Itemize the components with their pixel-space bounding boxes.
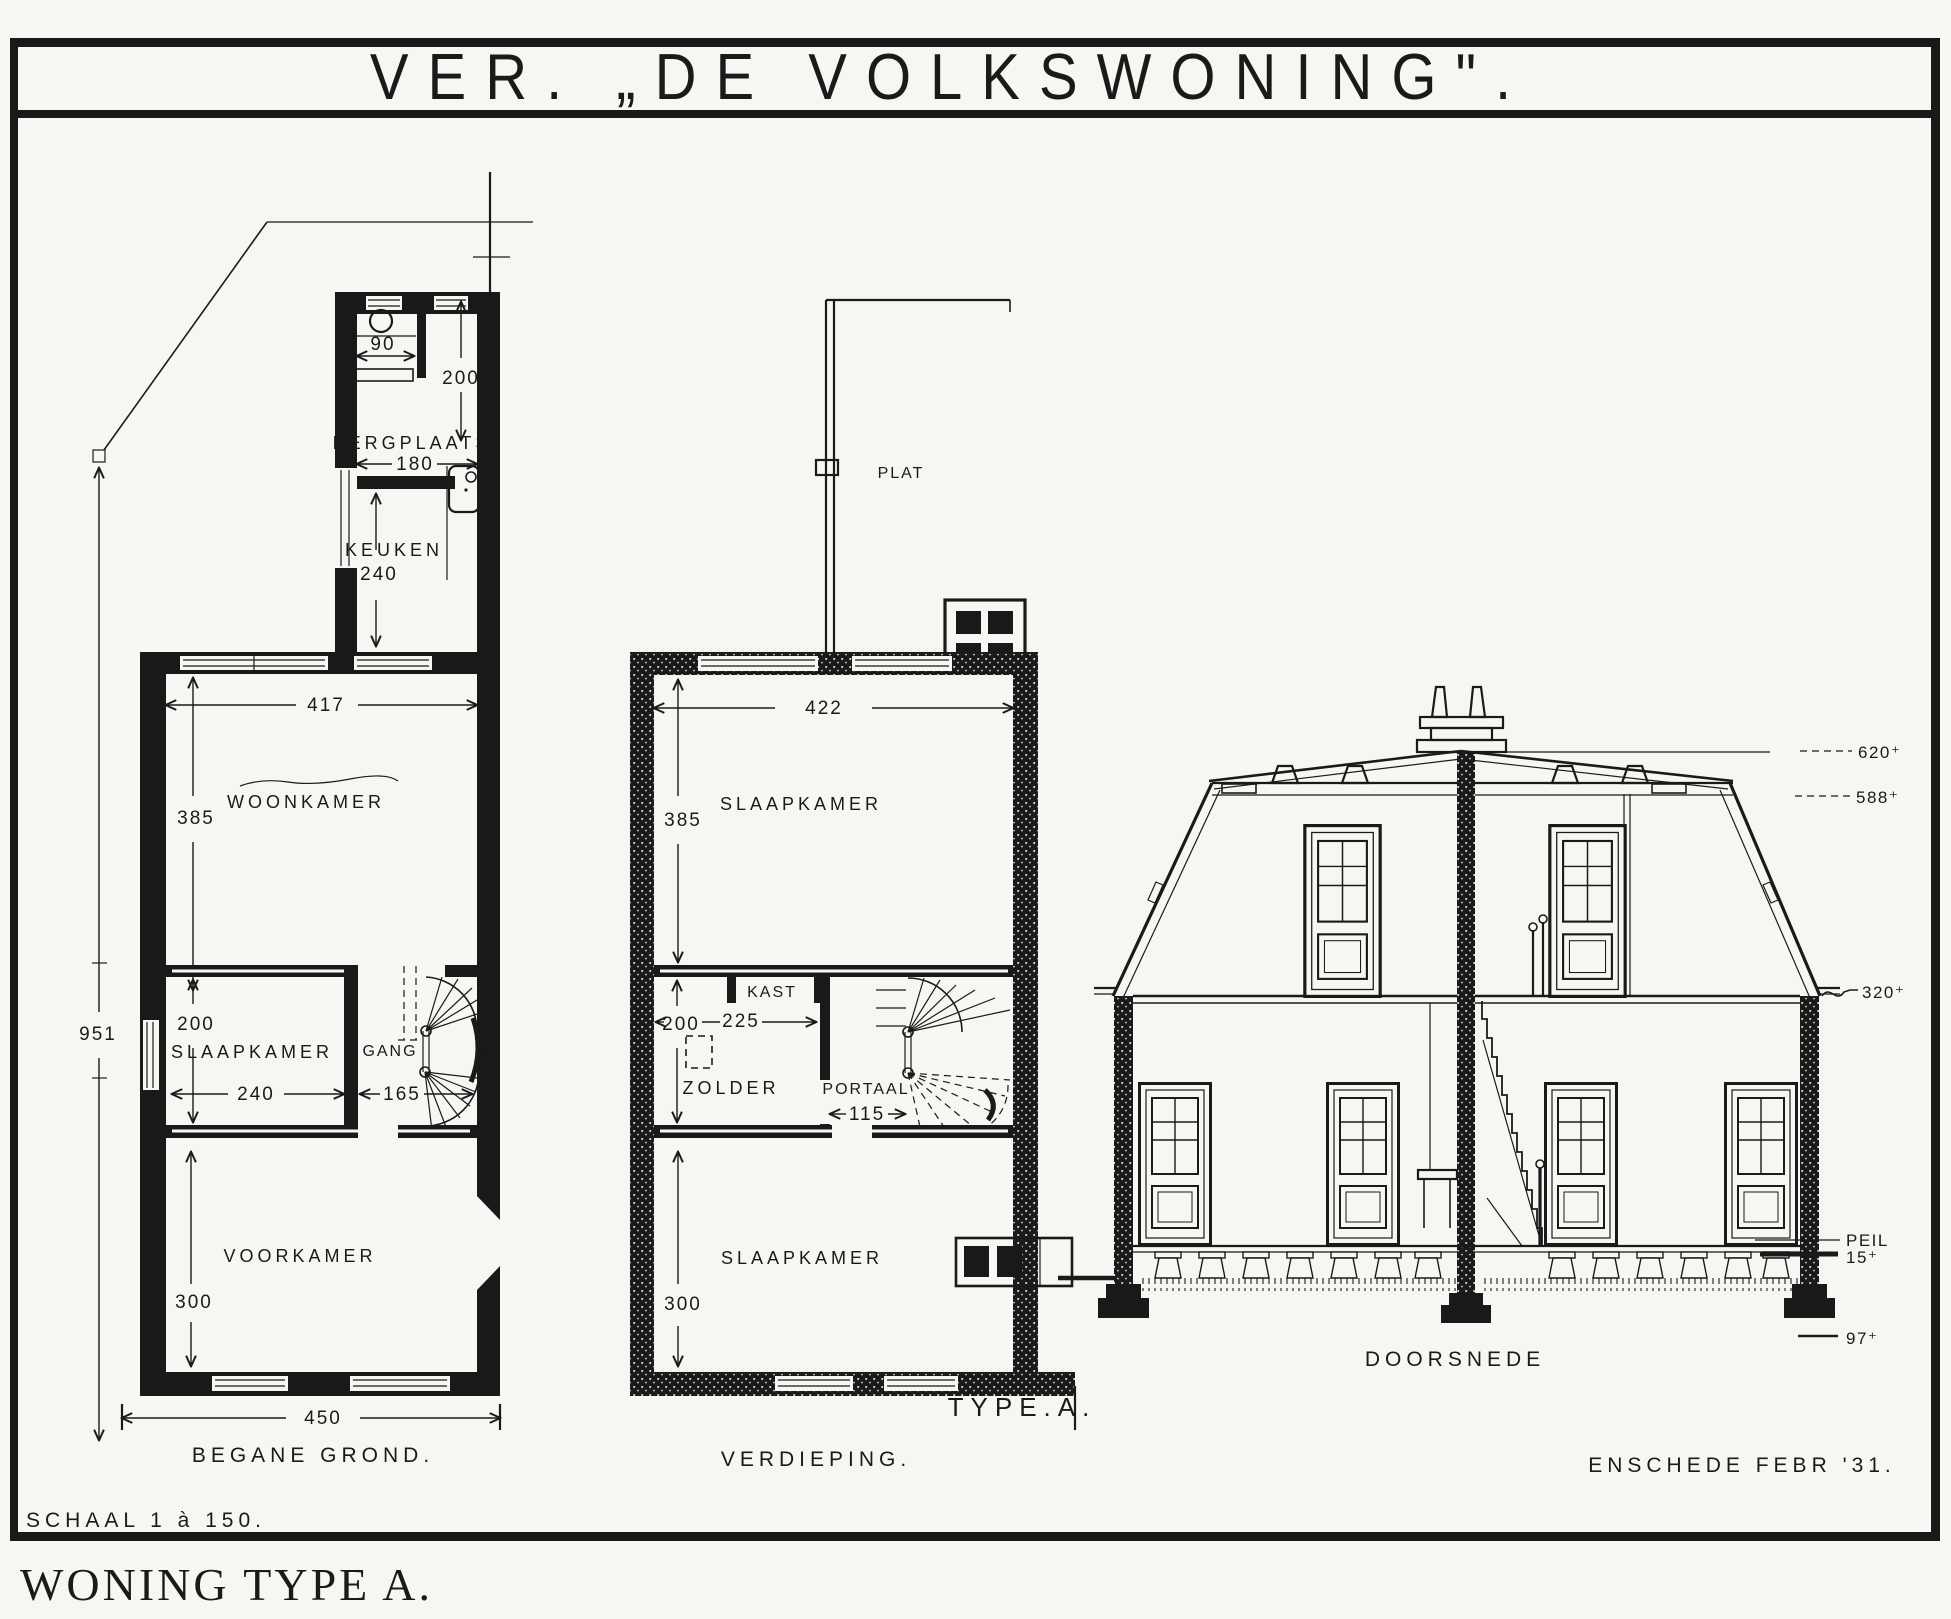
window-voorkamer-2 <box>350 1376 450 1391</box>
dim-bergplaats-width: 180 <box>396 454 434 475</box>
window-v-top-2 <box>852 656 952 671</box>
section-label: DOORSNEDE <box>1365 1348 1545 1371</box>
dim-voorkamer-depth: 300 <box>175 1292 213 1313</box>
elev-ridge: 620⁺ <box>1858 743 1901 762</box>
room-kast: KAST <box>747 984 797 1001</box>
ground-door-4 <box>1726 1084 1797 1245</box>
elev-floor1: 320⁺ <box>1862 983 1905 1002</box>
room-v-slaapkamer-front: SLAAPKAMER <box>720 794 882 814</box>
window-v-bottom-2 <box>884 1376 958 1391</box>
elev-foundation: 97⁺ <box>1846 1329 1878 1348</box>
window-woonkamer-top-1 <box>180 656 328 670</box>
dim-gang-width: 165 <box>383 1084 421 1105</box>
ground-floor-plan: 951 <box>79 172 533 1467</box>
blueprint-sheet: VER. „DE VOLKSWONING". 951 <box>0 0 1951 1619</box>
dim-portaal-width: 115 <box>849 1104 885 1125</box>
sheet-title: VER. „DE VOLKSWONING". <box>370 41 1530 114</box>
scale-note: SCHAAL 1 à 150. <box>26 1509 266 1532</box>
dim-v-slaapkamer-back-depth: 300 <box>664 1294 702 1315</box>
attic-door-left <box>1305 826 1380 997</box>
location-date-label: ENSCHEDE FEBR '31. <box>1588 1454 1896 1477</box>
dim-woonkamer-depth: 385 <box>177 808 215 829</box>
elev-gutter: 588⁺ <box>1856 788 1899 807</box>
room-v-slaapkamer-back: SLAAPKAMER <box>721 1248 883 1268</box>
dim-keuken-depth: 240 <box>360 564 398 585</box>
dim-house-width: 450 <box>304 1408 342 1429</box>
room-keuken: KEUKEN <box>345 540 443 560</box>
drawing-canvas: VER. „DE VOLKSWONING". 951 <box>0 0 1951 1619</box>
window-v-bottom-1 <box>775 1376 853 1391</box>
sheet-caption: WONING TYPE A. <box>20 1559 433 1610</box>
window-woonkamer-top-2 <box>354 656 432 670</box>
first-floor-label: VERDIEPING. <box>721 1448 911 1471</box>
room-zolder: ZOLDER <box>682 1078 779 1098</box>
window-slaapkamer-left <box>143 1020 159 1090</box>
dim-bergplaats-depth: 200 <box>442 368 480 389</box>
room-portaal: PORTAAL <box>822 1081 909 1098</box>
dim-woonkamer-width: 417 <box>307 695 345 716</box>
ground-door-3 <box>1546 1084 1617 1245</box>
room-gang: GANG <box>362 1043 417 1060</box>
room-plat: PLAT <box>878 465 925 482</box>
title-band: VER. „DE VOLKSWONING". <box>370 41 1530 114</box>
stair-section <box>1482 1001 1544 1246</box>
room-voorkamer: VOORKAMER <box>223 1246 376 1266</box>
dim-v-slaapkamer-depth: 385 <box>664 810 702 831</box>
dim-v-slaapkamer-width: 422 <box>805 698 843 719</box>
cross-section: 620⁺ 588⁺ 320⁺ PEIL 15⁺ 97⁺ DOORSNEDE <box>1058 687 1905 1371</box>
ground-door-1 <box>1140 1084 1211 1245</box>
window-v-top-1 <box>698 656 818 671</box>
dim-slaapkamer-depth: 200 <box>177 1014 215 1035</box>
dim-slaapkamer-width: 240 <box>237 1084 275 1105</box>
dim-house-depth: 951 <box>79 1024 117 1045</box>
elev-floor0: 15⁺ <box>1846 1248 1878 1267</box>
room-bergplaats: BERGPLAATS <box>333 433 492 453</box>
front-door-opening <box>477 1196 500 1290</box>
dim-wc-width: 90 <box>370 334 395 355</box>
dim-zolder-depth: 200 <box>662 1014 700 1035</box>
window-annex-2 <box>434 296 468 310</box>
spiral-stair-verdieping <box>876 978 1010 1136</box>
room-woonkamer: WOONKAMER <box>227 792 385 812</box>
type-label: TYPE.A. <box>948 1392 1097 1422</box>
window-annex-1 <box>366 296 402 310</box>
side-table-icon <box>1418 1170 1457 1228</box>
chimney-section-icon <box>1417 687 1506 752</box>
ground-floor-label: BEGANE GROND. <box>192 1444 434 1467</box>
dim-zolder-width: 225 <box>722 1011 760 1032</box>
first-floor-plan: PLAT 422 <box>630 300 1096 1471</box>
ground-door-2 <box>1328 1084 1399 1245</box>
attic-door-right <box>1550 826 1625 997</box>
room-slaapkamer: SLAAPKAMER <box>171 1042 333 1062</box>
spiral-stair-ground <box>420 977 479 1131</box>
window-voorkamer-1 <box>212 1376 288 1391</box>
border-frame <box>10 38 1940 1541</box>
